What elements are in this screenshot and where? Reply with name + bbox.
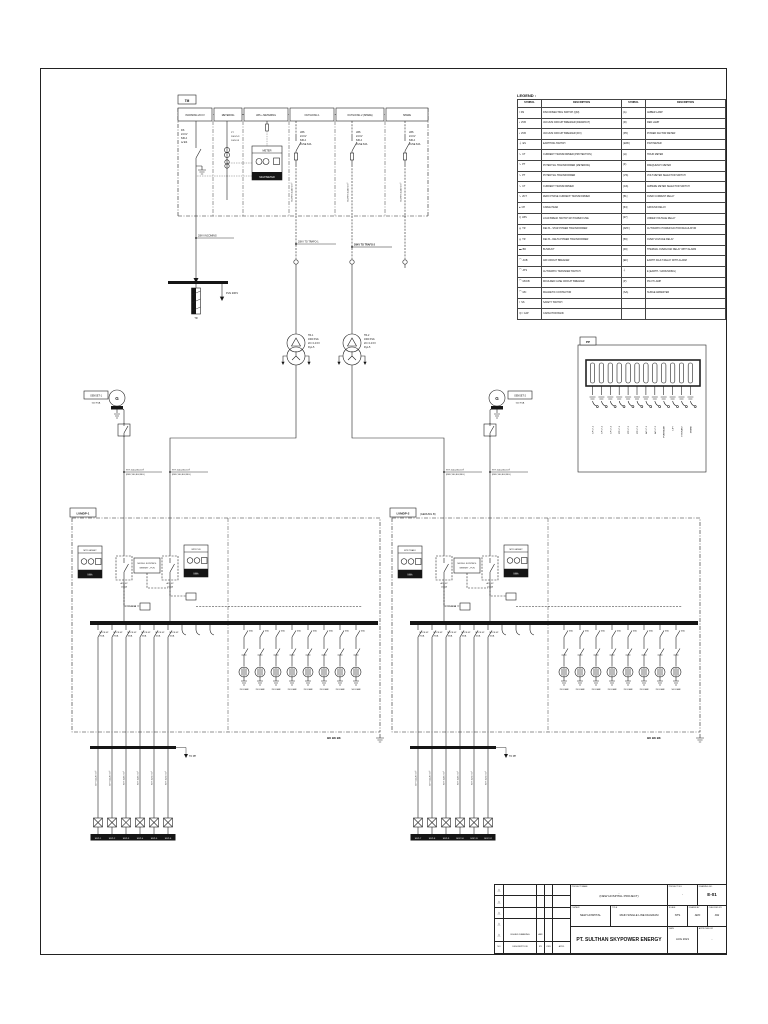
symbol-glyph-icon: ∿ xyxy=(519,185,521,188)
legend-symbol-cell: [49] xyxy=(622,245,646,256)
legend-symbol-cell: ▪VCB xyxy=(518,129,542,140)
mv-cable-rotated: N2XSY 3x240 mm² xyxy=(347,182,350,201)
company-name: PT. SULTHAN SKYPOWER ENERGY xyxy=(571,927,667,953)
acb-label: 2000A xyxy=(441,586,447,589)
drop-cable: NYY 4x95 mm² xyxy=(457,771,460,785)
col-header: CKD xyxy=(545,942,553,953)
project-no-value: - xyxy=(668,885,697,905)
legend-description: CURRENT TRANSFORMER (PROTECTION) xyxy=(542,150,622,161)
legend-symbol-cell: ∿CT xyxy=(518,150,542,161)
symbol-code: PT xyxy=(522,174,525,177)
sdp-label: SDP-9 xyxy=(443,838,450,840)
symbol-glyph-icon: ⌒ xyxy=(519,291,522,294)
lbs-label: 630 A xyxy=(300,139,307,142)
legend-symbol-cell: (R) xyxy=(622,118,646,129)
cap-kvar-label: 25 KVAR xyxy=(272,688,281,691)
legend-description: MOULDED CASE CIRCUIT BREAKER xyxy=(542,277,622,288)
mv-col-header: SPARE xyxy=(403,114,411,117)
cap-kvar-label: 25 KVAR xyxy=(304,688,313,691)
ct-label: CT 2500/5A xyxy=(445,605,456,608)
mv-panel-tag: TM xyxy=(185,99,190,103)
revision-triangle-icon: △ xyxy=(495,930,504,941)
drop-cable: NYY 4x70 mm² xyxy=(471,771,474,785)
transformer-label: 1600 KVA xyxy=(308,338,319,341)
symbol-glyph-icon: (F) xyxy=(623,163,626,166)
col-header: APVD xyxy=(553,942,570,953)
drawing-sheet: TM INCOMING 20 KV METERING LBS + METERIN… xyxy=(0,0,768,1024)
cap-breaker-label: 63A xyxy=(329,630,333,633)
cap-breaker-label: 63A xyxy=(361,630,365,633)
revision-cell xyxy=(545,919,553,929)
feeder-label: 100A xyxy=(156,634,161,637)
project-line2: (NEW HOSPITAL PROJECT) xyxy=(599,895,638,899)
symbol-glyph-icon: (AS) xyxy=(623,185,628,188)
symbol-glyph-icon: ∿ xyxy=(519,195,521,198)
cap-breaker-label: 63A xyxy=(249,630,253,633)
title-block: △ △ △ xyxy=(494,884,727,954)
col-header: NO xyxy=(495,942,504,953)
legend-description: PILOT LAMP xyxy=(646,277,726,288)
symbol-glyph-icon: ⌒ xyxy=(519,259,522,262)
project-no-field: PROJECT NO. - xyxy=(668,885,698,905)
ds-label: w/ ES xyxy=(181,141,188,144)
mv-panel: TM INCOMING 20 KV METERING LBS + METERIN… xyxy=(168,95,428,320)
circuit-label: AC LT-2 xyxy=(654,425,657,434)
legend-description: CAPACITOR BANK xyxy=(542,309,622,320)
acb-label: 2000A xyxy=(121,586,127,589)
sdp-label: SDP-1 xyxy=(95,838,102,840)
lbs-label: LBS xyxy=(356,131,361,134)
date-field: DATE AUG 2021 xyxy=(668,927,698,953)
mv-col-header: METERING xyxy=(222,114,235,117)
ds-label: 24 KV xyxy=(181,133,188,136)
legend-description: UNDER VOLTAGE RELAY xyxy=(646,213,726,224)
symbol-code: CT xyxy=(522,185,525,188)
symbol-glyph-icon: (kWh) xyxy=(623,142,630,145)
symbol-code: PT xyxy=(522,163,525,166)
sdp-label: SDP-6 xyxy=(165,838,172,840)
issued-cell xyxy=(553,930,570,941)
feeder-label: 250A xyxy=(420,634,425,637)
meter-title: MTR PLN xyxy=(192,549,201,551)
acb-label: 2000A xyxy=(167,586,173,589)
symbol-code: LBS xyxy=(522,216,527,219)
legend-row: ⌒ATS AUTOMATIC TRANSFER SWITCH ⏚ E (EART… xyxy=(518,266,726,277)
symbol-code: SS xyxy=(521,301,524,304)
legend-symbol-cell: ⏚ xyxy=(622,266,646,277)
feeder-label: MCCB 4P xyxy=(476,632,486,634)
legend-description: E (EARTH / GROUNDING) xyxy=(646,266,726,277)
genset-name: GENSET-2 xyxy=(514,394,526,397)
cap-breaker-label: 63A xyxy=(265,630,269,633)
legend-description: FREQUENCY METER xyxy=(646,160,726,171)
symbol-code: ATS xyxy=(523,269,527,272)
revision-table: △ △ △ xyxy=(495,885,571,953)
drop-cable: NYY 4x95 mm² xyxy=(123,771,126,785)
legend-description: EARTHING SWITCH xyxy=(542,139,622,150)
lbs-label: LBS xyxy=(300,131,305,134)
symbol-glyph-icon: ∿ xyxy=(519,153,521,156)
legend-symbol-cell: ⌒ATS xyxy=(518,266,542,277)
circuit-label: PP LT-3 xyxy=(637,425,639,433)
sdp-label: SDP-2 xyxy=(109,838,116,840)
ct-label: CT 2500/5A xyxy=(125,605,136,608)
sdp-label: SDP-11 xyxy=(470,838,478,840)
revision-header-row: NO DESCRIPTION BY CKD APVD xyxy=(495,942,570,953)
symbol-glyph-icon: [59] xyxy=(623,238,627,241)
symbol-code: ES xyxy=(523,142,526,145)
symbol-glyph-icon: (PF) xyxy=(623,132,628,135)
revision-row: △ xyxy=(495,908,570,919)
legend-description: AUTOMATIC POWER FACTOR REGULATOR xyxy=(646,224,726,235)
legend-symbol-cell: [APF] xyxy=(622,224,646,235)
symbol-glyph-icon: ⌒ xyxy=(519,280,522,283)
legend-description: HOUR METER xyxy=(646,150,726,161)
legend-title: LEGEND : xyxy=(517,93,727,98)
drawing-no-value: E-01 xyxy=(698,885,726,905)
pp-detail-panel: PP LP LT-1 LP LT-2 LP LT-3 PP LT-1 PP LT… xyxy=(578,337,706,472)
legend-description: AUTOMATIC TRANSFER SWITCH xyxy=(542,266,622,277)
sdp-label: SDP-4 xyxy=(137,838,144,840)
drawing-title-field: TITLE MAIN SINGLE LINE DIAGRAM xyxy=(611,906,668,926)
feeder-label: MCCB 4P xyxy=(462,632,472,634)
legend-symbol-cell: (PF) xyxy=(622,129,646,140)
revision-row: △ xyxy=(495,919,570,929)
feeder-label: 160A xyxy=(448,634,453,637)
cap-breaker-label: 63A xyxy=(665,630,669,633)
symbol-code: TR xyxy=(522,238,525,241)
legend-description: POTENTIAL TRANSFORMER (METERING) xyxy=(542,160,622,171)
mv-col-header: OUTGOING 1 xyxy=(304,114,320,117)
revision-cell xyxy=(553,919,570,929)
field-label: APPROVED BY xyxy=(699,928,713,930)
legend-row: ▬BD BUSDUCT [49] THERMAL OVERLOAD RELAY … xyxy=(518,245,726,256)
legend-row: ⌇SS SAFETY SWITCH xyxy=(518,298,726,309)
feeder-label: 100A xyxy=(170,634,175,637)
module-label: MODUL KONTROL xyxy=(457,563,477,565)
meter-title: MTR GENSET xyxy=(509,549,523,551)
cap-breaker-label: 63A xyxy=(681,630,685,633)
legend-description: CURRENT TRANSFORMER xyxy=(542,182,622,193)
symbol-glyph-icon: ◎ xyxy=(519,238,521,241)
kwh-label: kWh xyxy=(194,573,199,576)
cap-kvar-label: 25 KVAR xyxy=(288,688,297,691)
revision-cell xyxy=(537,896,545,906)
symbol-code: TR xyxy=(522,227,525,230)
legend-row: ⌒ACB AIR CIRCUIT BREAKER [EF] EARTH FAUL… xyxy=(518,256,726,267)
issued-cell xyxy=(545,930,553,941)
legend-symbol-cell: ∿CT xyxy=(518,182,542,193)
circuit-label: SPARE xyxy=(689,425,692,433)
feeder-label: MCCB 4P xyxy=(490,632,500,634)
genset-rating: 500 KVA xyxy=(92,401,101,404)
symbol-code: DS xyxy=(521,111,524,114)
sdp-label: SDP-5 xyxy=(151,838,158,840)
legend-description: VACUUM CIRCUIT BREAKER (FIX) xyxy=(542,129,622,140)
symbol-code: VCB xyxy=(521,121,526,124)
symbol-code: BD xyxy=(523,248,526,251)
legend-description: SAFETY SWITCH xyxy=(542,298,622,309)
symbol-glyph-icon: ▪ xyxy=(519,132,520,135)
lvmdp-2-panel: LVMDP-2 (GEDUNG B) MTR TRAFO kWh MTR GEN… xyxy=(390,508,704,841)
mv-cable-rotated: N2XSY 3x240 mm² xyxy=(291,182,294,201)
legend-description: MAGNETIC CONTACTOR xyxy=(542,288,622,299)
symbol-glyph-icon: ∿ xyxy=(519,163,521,166)
legend-header: SYMBOL xyxy=(622,100,646,108)
feeder-label: 160A xyxy=(142,634,147,637)
cap-breaker-label: 63A xyxy=(585,630,589,633)
cap-breaker-label: 63A xyxy=(281,630,285,633)
feeder-label: 250A xyxy=(434,634,439,637)
symbol-glyph-icon: [27] xyxy=(623,216,627,219)
revision-triangle-icon: △ xyxy=(495,896,504,906)
legend-description: RED LAMP xyxy=(646,118,726,129)
legend-symbol-cell: (A) xyxy=(622,108,646,119)
mv-outgoing-spare: LBS 24 KV 630 A FUSE 63A N2XSY 3x240 mm² xyxy=(400,121,421,268)
owner-value: NEW HOSPITAL xyxy=(571,906,610,926)
acb-label: 2000A xyxy=(487,586,493,589)
legend-symbol-cell: =|=CAP xyxy=(518,309,542,320)
revision-cell xyxy=(545,885,553,895)
pt-label: 20KV/√3 xyxy=(231,135,240,138)
revision-cell xyxy=(545,896,553,906)
lbs-label: FUSE 63A xyxy=(409,143,421,146)
revision-description xyxy=(504,896,537,906)
revision-triangle-icon: △ xyxy=(495,919,504,929)
mv-cable-rotated: N2XSY 3x240 mm² xyxy=(400,182,403,201)
generator-symbol-letter: G xyxy=(115,396,119,401)
legend-symbol-cell xyxy=(622,298,646,309)
legend-description: DELTA - STAR POWER TRANSFORMER xyxy=(542,224,622,235)
symbol-code: ZCT xyxy=(522,195,527,198)
drop-cable: NYY 4x70 mm² xyxy=(165,771,168,785)
cap-breaker-label: 63A xyxy=(569,630,573,633)
mv-col-header: OUTGOING 2 (SPARE) xyxy=(347,114,372,117)
legend-description: POTENTIAL TRANSFORMER xyxy=(542,171,622,182)
legend-symbol-cell: [64] xyxy=(622,203,646,214)
mv-outgoing-1: LBS 24 KV 630 A FUSE 63A N2XSY 3x240 mm² xyxy=(291,121,312,268)
drop-cable: NYY 4x120 mm² xyxy=(415,770,418,785)
legend-description: OVER CURRENT RELAY xyxy=(646,192,726,203)
date-value: AUG 2021 xyxy=(668,927,697,953)
cable-label: NYY 4x(1x240) mm² xyxy=(446,469,464,472)
owner-field: OWNER NEW HOSPITAL xyxy=(571,906,611,926)
cable-label: (RED,YEL,BLK,BLU) xyxy=(172,474,191,476)
legend-symbol-cell: (P) xyxy=(622,277,646,288)
legend-header: SYMBOL xyxy=(518,100,542,108)
legend-description: LOAD BREAK SWITCH W/ POWER FUSE xyxy=(542,213,622,224)
acb-label: ACB 4P xyxy=(440,582,448,585)
bus-marks: BK BK BK xyxy=(647,736,661,740)
drawn-field: DRAWN BY ARF xyxy=(688,906,708,926)
legend-symbol-cell: [EF] xyxy=(622,256,646,267)
feeder-label: 100A xyxy=(476,634,481,637)
scale-value: NTS xyxy=(668,906,687,926)
drop-cable: NYY 4x95 mm² xyxy=(443,771,446,785)
circuit-label: LP LT-2 xyxy=(601,425,603,433)
legend-description: EARTH FAULT RELAY WITH ALARM xyxy=(646,256,726,267)
circuit-label: LP LT-1 xyxy=(593,425,595,433)
lbs-label: 24 KV xyxy=(356,135,363,138)
cable-label: NYY 4x(1x240) mm² xyxy=(172,469,190,472)
legend-symbol-cell: ⌒MC xyxy=(518,288,542,299)
legend-row: /DS DISCONNECTING SWITCH (QM) (A) AMBER … xyxy=(518,108,726,119)
legend-header: DESCRIPTION xyxy=(542,100,622,108)
field-label: PROJECT NAME xyxy=(572,886,588,888)
cable-label: (RED,YEL,BLK,BLU) xyxy=(446,474,465,476)
symbol-glyph-icon: [APF] xyxy=(623,227,630,230)
acb-label: ACB 4P xyxy=(486,582,494,585)
meter-title: MTR GENSET xyxy=(83,550,97,552)
legend-symbol-cell: [27] xyxy=(622,213,646,224)
cap-kvar-label: 50 KVAR xyxy=(672,688,681,691)
drawing-no-field: DRAWING NO. E-01 xyxy=(698,885,726,905)
feeder-label: 160A xyxy=(462,634,467,637)
circuit-label: PP LT-2 xyxy=(628,425,630,433)
legend-symbol-cell: ▬BD xyxy=(518,245,542,256)
transformer-label: 1600 KVA xyxy=(364,338,375,341)
issued-description: ISSUED DRAWING xyxy=(504,930,537,941)
checked-field: CHECKED BY AW xyxy=(708,906,726,926)
legend-row: =|=CAP CAPACITOR BANK xyxy=(518,309,726,320)
cap-kvar-label: 25 KVAR xyxy=(560,688,569,691)
legend-row: ∿PT POTENTIAL TRANSFORMER (METERING) (F)… xyxy=(518,160,726,171)
cap-kvar-label: 25 KVAR xyxy=(624,688,633,691)
symbol-glyph-icon: (VS) xyxy=(623,174,628,177)
pt-label: 100V/√3 xyxy=(231,139,240,142)
genset-rating: 500 KVA xyxy=(516,401,525,404)
mv-col-header: LBS + METERING xyxy=(256,114,276,117)
legend-symbol-cell: ◎TR xyxy=(518,224,542,235)
legend-symbol-cell: ∿ZCT xyxy=(518,192,542,203)
revision-description xyxy=(504,919,537,929)
legend-description: AIR CIRCUIT BREAKER xyxy=(542,256,622,267)
acb-label: ACB 4P xyxy=(166,582,174,585)
legend-description xyxy=(646,309,726,320)
bus-marks: BK BK BK xyxy=(327,736,341,740)
legend-symbol-cell: ◎TR xyxy=(518,235,542,246)
legend-symbol-cell: ⌒ACB xyxy=(518,256,542,267)
cable-label: 20KV INCOMING xyxy=(198,235,217,238)
transformer-label: 20 / 0.4 KV xyxy=(308,342,320,345)
revision-cell xyxy=(553,896,570,906)
feeder-label: 250A xyxy=(100,634,105,637)
symbol-glyph-icon: [64] xyxy=(623,206,627,209)
symbol-glyph-icon: (P) xyxy=(623,280,626,283)
symbol-code: CAP xyxy=(524,312,529,315)
feeder-label: MCCB 4P xyxy=(448,632,458,634)
symbol-code: ACB xyxy=(523,259,528,262)
lbs-label: 630 A xyxy=(409,139,416,142)
transformer-label: Dyn-5 xyxy=(308,346,315,349)
symbol-glyph-icon: ● xyxy=(519,206,521,209)
circuit-label: HYDRANT xyxy=(681,425,684,436)
cable-label: NYY 4x(1x240) mm² xyxy=(492,469,510,472)
symbol-glyph-icon: ◎ xyxy=(519,227,521,230)
project-field: PROJECT NAME -(NEW HOSPITAL PROJECT) xyxy=(571,885,668,905)
drop-cable: NYY 4x120 mm² xyxy=(95,770,98,785)
revision-triangle-icon: △ xyxy=(495,885,504,895)
legend-row: ◎TR DELTA - STAR POWER TRANSFORMER [APF]… xyxy=(518,224,726,235)
legend-row: ∿PT POTENTIAL TRANSFORMER (VS) VOLT METE… xyxy=(518,171,726,182)
cap-breaker-label: 63A xyxy=(297,630,301,633)
cap-kvar-label: 25 KVAR xyxy=(608,688,617,691)
circuit-label: LP LT-3 xyxy=(610,425,612,433)
stub-label: TO PP xyxy=(509,755,517,758)
feeder-label: MCCB 4P xyxy=(434,632,444,634)
issued-row: △ ISSUED DRAWING ARF xyxy=(495,930,570,942)
symbol-glyph-icon: (A) xyxy=(623,111,626,114)
termination-label: TR xyxy=(194,317,197,320)
circuit-label: LIFT xyxy=(673,425,675,430)
legend-description xyxy=(646,298,726,309)
legend-description: VOLT METER SELECTOR SWITCH xyxy=(646,171,726,182)
symbol-glyph-icon: ▪ xyxy=(519,121,520,124)
lbs-label: LBS xyxy=(409,131,414,134)
revision-cell xyxy=(545,908,553,918)
sdp-label: SDP-10 xyxy=(456,838,464,840)
symbol-glyph-icon: (SA) xyxy=(623,291,628,294)
symbol-code: CH xyxy=(522,206,525,209)
transformer-label: TR-1 xyxy=(308,334,314,337)
lbs-label: 24 KV xyxy=(300,135,307,138)
pt-label: PT xyxy=(231,132,234,134)
panel-tag: PP xyxy=(586,340,590,344)
checked-value: AW xyxy=(708,906,726,926)
cap-breaker-label: 63A xyxy=(633,630,637,633)
kwh-label: kWh xyxy=(408,574,413,577)
legend-symbol-cell: [59] xyxy=(622,235,646,246)
cap-breaker-label: 63A xyxy=(313,630,317,633)
mv-col-header: INCOMING 20 KV xyxy=(185,114,205,117)
legend-row: ◎TR DELTA - DELTA POWER TRANSFORMER [59]… xyxy=(518,235,726,246)
cap-kvar-label: 25 KVAR xyxy=(256,688,265,691)
symbol-glyph-icon: ⌒ xyxy=(519,269,522,272)
cap-breaker-label: 63A xyxy=(617,630,621,633)
panel-tag-suffix: (GEDUNG B) xyxy=(420,512,436,516)
cap-kvar-label: 25 KVAR xyxy=(640,688,649,691)
revision-cell xyxy=(537,885,545,895)
legend-description: GROUND RELAY xyxy=(646,203,726,214)
revision-row: △ xyxy=(495,885,570,896)
feeder-label: MCCB 4P xyxy=(114,632,124,634)
legend-description: ZERO PHASE CURRENT TRANSFORMER xyxy=(542,192,622,203)
legend-symbol-cell: (SA) xyxy=(622,288,646,299)
symbol-code: MC xyxy=(523,291,527,294)
revision-description xyxy=(504,908,537,918)
genset-2: G GENSET-2 500 KVA xyxy=(484,390,532,556)
panel-tag: LVMDP-1 xyxy=(77,512,90,516)
legend: LEGEND : SYMBOL DESCRIPTION SYMBOL DESCR… xyxy=(517,93,727,320)
symbol-glyph-icon: [51] xyxy=(623,195,627,198)
feeder-label: MCCB 4P xyxy=(420,632,430,634)
feeder-label: 100A xyxy=(490,634,495,637)
lv-cable-labels: NYY 4x(1x240) mm² (RED,YEL,BLK,BLU) NYY … xyxy=(123,469,528,477)
meter-title: METER xyxy=(262,148,271,152)
col-header: BY xyxy=(537,942,545,953)
legend-table: SYMBOL DESCRIPTION SYMBOL DESCRIPTION /D… xyxy=(517,99,726,320)
field-label: PROJECT NO. xyxy=(669,886,682,888)
approved-value: - xyxy=(698,927,726,953)
legend-description: OVER VOLTAGE RELAY xyxy=(646,235,726,246)
legend-symbol-cell: ⌒MCCB xyxy=(518,277,542,288)
legend-row: ⌒MC MAGNETIC CONTACTOR (SA) SURGE ARREST… xyxy=(518,288,726,299)
symbol-glyph-icon: (H) xyxy=(623,153,627,156)
legend-symbol-cell xyxy=(622,309,646,320)
legend-symbol-cell: ∿PT xyxy=(518,171,542,182)
field-label: DATE xyxy=(669,928,674,930)
cap-breaker-label: 63A xyxy=(649,630,653,633)
